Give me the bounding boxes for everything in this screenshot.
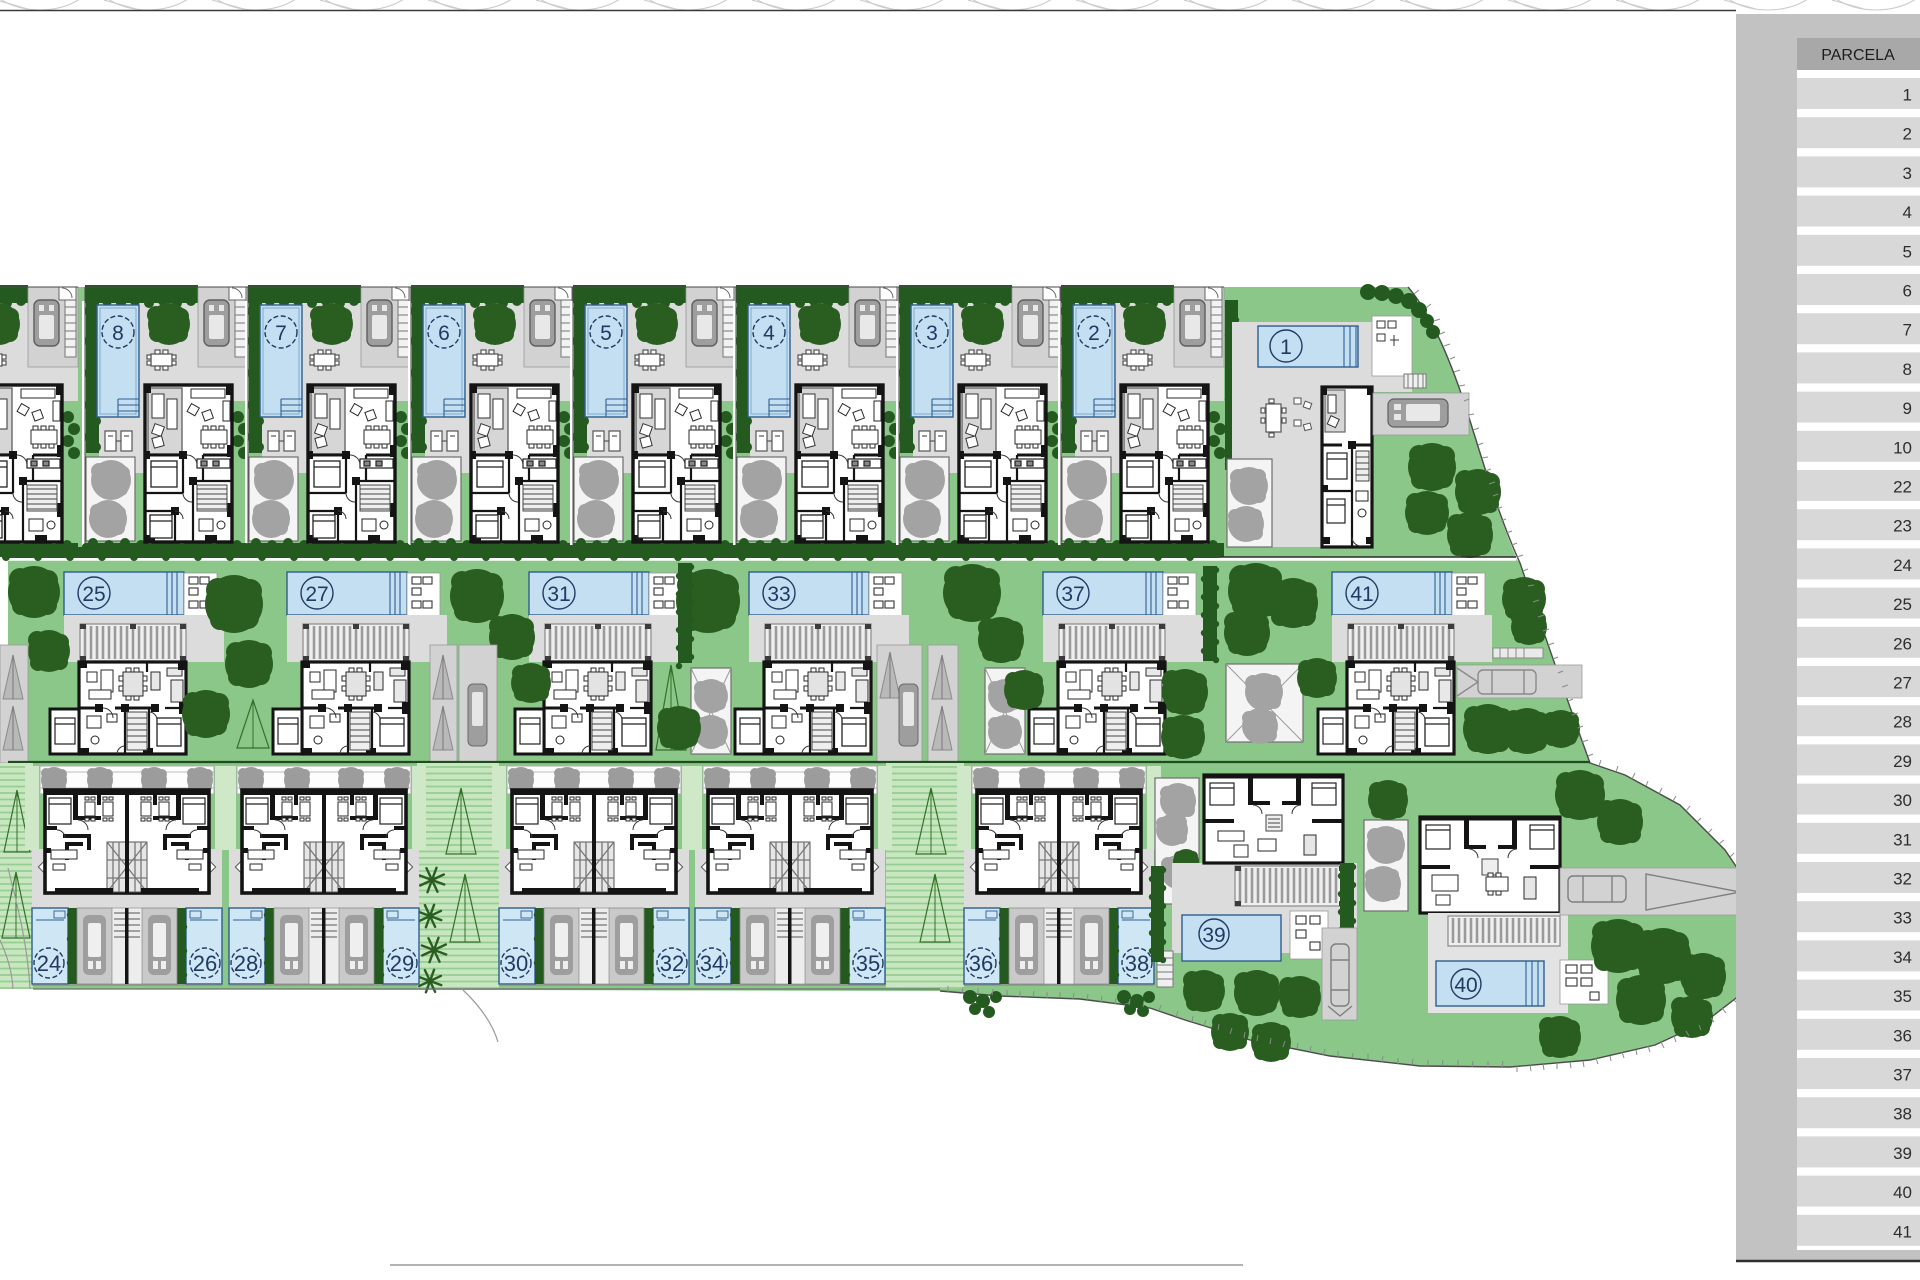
- svg-text:25: 25: [1893, 595, 1912, 614]
- svg-text:3: 3: [1903, 164, 1912, 183]
- svg-text:1: 1: [1280, 336, 1292, 359]
- svg-text:33: 33: [767, 583, 790, 606]
- svg-text:41: 41: [1893, 1222, 1912, 1241]
- svg-text:9: 9: [1903, 399, 1912, 418]
- svg-text:34: 34: [1893, 948, 1912, 967]
- svg-text:29: 29: [1893, 752, 1912, 771]
- svg-text:5: 5: [600, 322, 612, 345]
- svg-text:7: 7: [275, 322, 287, 345]
- svg-text:22: 22: [1893, 478, 1912, 497]
- svg-text:2: 2: [1088, 322, 1100, 345]
- svg-text:8: 8: [112, 322, 124, 345]
- svg-text:27: 27: [305, 583, 328, 606]
- svg-text:10: 10: [1893, 438, 1912, 457]
- svg-text:8: 8: [1903, 360, 1912, 379]
- svg-text:28: 28: [234, 951, 258, 976]
- svg-text:34: 34: [700, 951, 724, 976]
- svg-text:6: 6: [1903, 282, 1912, 301]
- svg-text:30: 30: [1893, 791, 1912, 810]
- svg-text:35: 35: [1893, 987, 1912, 1006]
- svg-text:40: 40: [1893, 1183, 1912, 1202]
- svg-text:32: 32: [660, 951, 684, 976]
- svg-text:32: 32: [1893, 870, 1912, 889]
- svg-text:4: 4: [1903, 203, 1912, 222]
- svg-text:28: 28: [1893, 713, 1912, 732]
- svg-text:37: 37: [1061, 583, 1084, 606]
- svg-text:37: 37: [1893, 1066, 1912, 1085]
- svg-text:38: 38: [1893, 1105, 1912, 1124]
- svg-text:25: 25: [82, 583, 105, 606]
- svg-text:1: 1: [1903, 86, 1912, 105]
- svg-text:27: 27: [1893, 674, 1912, 693]
- svg-text:2: 2: [1903, 125, 1912, 144]
- svg-text:36: 36: [1893, 1026, 1912, 1045]
- svg-text:33: 33: [1893, 909, 1912, 928]
- svg-text:30: 30: [504, 951, 528, 976]
- svg-text:24: 24: [1893, 556, 1912, 575]
- svg-text:31: 31: [547, 583, 570, 606]
- svg-text:4: 4: [763, 322, 775, 345]
- svg-text:3: 3: [926, 322, 938, 345]
- svg-text:26: 26: [1893, 634, 1912, 653]
- svg-text:26: 26: [193, 951, 217, 976]
- svg-text:7: 7: [1903, 321, 1912, 340]
- svg-text:38: 38: [1125, 951, 1149, 976]
- svg-text:35: 35: [856, 951, 880, 976]
- svg-text:5: 5: [1903, 242, 1912, 261]
- svg-text:PARCELA: PARCELA: [1821, 47, 1895, 64]
- svg-text:36: 36: [969, 951, 993, 976]
- svg-text:24: 24: [37, 951, 61, 976]
- svg-text:40: 40: [1454, 974, 1477, 997]
- svg-text:39: 39: [1202, 924, 1225, 947]
- svg-text:23: 23: [1893, 517, 1912, 536]
- svg-text:31: 31: [1893, 830, 1912, 849]
- svg-text:6: 6: [438, 322, 450, 345]
- svg-text:29: 29: [390, 951, 414, 976]
- svg-text:41: 41: [1350, 583, 1373, 606]
- svg-text:39: 39: [1893, 1144, 1912, 1163]
